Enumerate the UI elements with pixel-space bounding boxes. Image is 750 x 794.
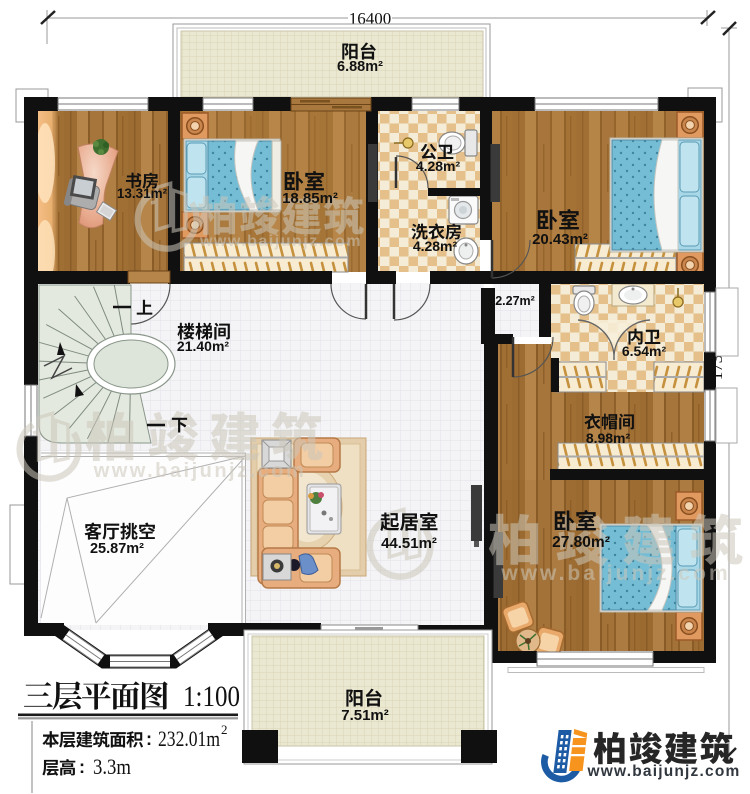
- svg-text:13.31m²: 13.31m²: [117, 186, 168, 201]
- svg-text:4.28m²: 4.28m²: [413, 238, 458, 254]
- svg-text:6.54m²: 6.54m²: [622, 343, 667, 359]
- svg-text::: :: [79, 757, 85, 777]
- svg-text:www.baijunjz.com: www.baijunjz.com: [500, 562, 730, 585]
- svg-text:21.40m²: 21.40m²: [177, 338, 229, 354]
- svg-text:7.51m²: 7.51m²: [341, 707, 389, 724]
- svg-text:20.43m²: 20.43m²: [532, 231, 588, 248]
- svg-text:1:100: 1:100: [183, 680, 240, 713]
- svg-text:232.01m: 232.01m: [158, 726, 220, 751]
- svg-text:www.baijunjz.com: www.baijunjz.com: [93, 460, 307, 482]
- svg-text:8.98m²: 8.98m²: [586, 430, 631, 446]
- svg-text:44.51m²: 44.51m²: [381, 535, 437, 552]
- svg-text:27.80m²: 27.80m²: [552, 534, 610, 551]
- svg-text:2.27m²: 2.27m²: [495, 294, 535, 308]
- svg-text:www.baijunjz.com: www.baijunjz.com: [587, 763, 741, 780]
- svg-text::: :: [146, 729, 152, 749]
- svg-text:2: 2: [221, 722, 228, 737]
- svg-text:25.87m²: 25.87m²: [90, 541, 144, 557]
- svg-text:3.3m: 3.3m: [93, 754, 131, 779]
- svg-text:6.88m²: 6.88m²: [337, 59, 383, 75]
- svg-text:18.85m²: 18.85m²: [282, 190, 338, 207]
- svg-text:www.baijunjz.com: www.baijunjz.com: [199, 233, 362, 250]
- svg-text:4.28m²: 4.28m²: [416, 158, 461, 174]
